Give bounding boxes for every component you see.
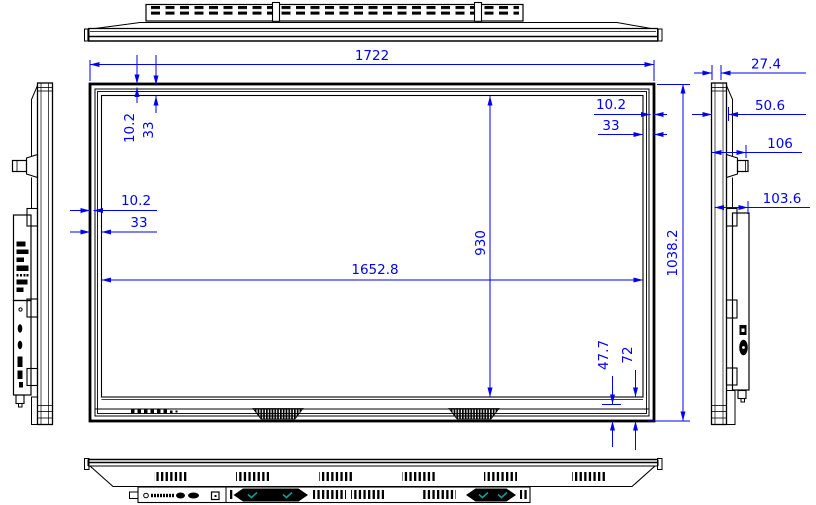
dim-active-height-label: 930 bbox=[473, 230, 489, 256]
dim-top-bezel-outer-label: 33 bbox=[141, 121, 157, 138]
foot-left bbox=[16, 395, 24, 404]
right-side-view bbox=[712, 83, 750, 425]
dim-depth-handle: 106 bbox=[712, 136, 802, 158]
dim-right-bezel-inner-label: 10.2 bbox=[596, 97, 626, 113]
bracket-tab bbox=[727, 368, 738, 385]
bracket-tab bbox=[27, 299, 38, 317]
control-buttons bbox=[131, 410, 178, 414]
dim-right-bezel-outer-label: 33 bbox=[602, 118, 619, 134]
top-view bbox=[85, 3, 663, 42]
dim-left-bezel: 10.2 33 bbox=[70, 193, 157, 232]
dim-depth-handle-label: 106 bbox=[767, 136, 793, 152]
dim-depth-panel: 50.6 bbox=[692, 98, 806, 121]
dim-depth-back-box: 103.6 bbox=[715, 191, 811, 214]
dim-right-bezel: 10.2 33 bbox=[594, 97, 667, 135]
bracket-tab bbox=[727, 209, 738, 227]
front-outer-frame bbox=[90, 84, 654, 421]
speaker-right bbox=[466, 489, 516, 502]
dim-bottom-bezel: 47.7 72 bbox=[596, 340, 636, 450]
bracket-tab bbox=[27, 369, 38, 386]
handle-left bbox=[13, 155, 38, 178]
dimension-drawing: 1722 10.2 33 10.2 33 10.2 33 1652.8 930 bbox=[0, 0, 816, 505]
dim-overall-width-label: 1722 bbox=[355, 48, 389, 64]
bottom-view bbox=[85, 459, 663, 503]
dim-active-width-label: 1652.8 bbox=[351, 262, 398, 278]
dim-depth-panel-label: 50.6 bbox=[755, 98, 785, 114]
dim-left-bezel-inner-label: 10.2 bbox=[121, 193, 151, 209]
bracket-tab bbox=[27, 209, 38, 227]
power-switch bbox=[740, 325, 747, 335]
top-vent-grille bbox=[146, 3, 523, 22]
foot-right bbox=[738, 391, 746, 399]
bracket-tab bbox=[727, 300, 738, 318]
dim-left-bezel-outer-label: 33 bbox=[130, 215, 147, 231]
dim-overall-height-label: 1038.2 bbox=[665, 229, 681, 276]
side-io-connectors bbox=[17, 242, 29, 293]
speaker-left bbox=[234, 489, 309, 502]
power-inlet bbox=[739, 340, 748, 356]
dim-active-area: 1652.8 930 bbox=[102, 96, 644, 397]
bottom-stub bbox=[130, 492, 139, 499]
mount-bracket-right bbox=[475, 3, 482, 22]
dim-depth-front-label: 27.4 bbox=[751, 57, 781, 73]
dim-depth-front: 27.4 bbox=[694, 57, 806, 81]
bottom-vent-slots bbox=[154, 472, 605, 481]
speaker-grille-left bbox=[253, 409, 303, 420]
side-lower-ports bbox=[18, 308, 24, 388]
speaker-grille-right bbox=[449, 409, 499, 420]
handle-right bbox=[727, 155, 749, 178]
side-lower-box bbox=[14, 301, 32, 396]
dim-bottom-bezel-inner-label: 47.7 bbox=[596, 340, 612, 370]
mount-bracket-left bbox=[273, 3, 280, 22]
dim-top-bezel: 10.2 33 bbox=[122, 55, 157, 143]
dim-depth-back-box-label: 103.6 bbox=[763, 191, 802, 207]
dim-top-bezel-inner-label: 10.2 bbox=[122, 113, 138, 143]
dim-overall-width: 1722 bbox=[90, 48, 654, 81]
back-box bbox=[733, 213, 750, 390]
front-view bbox=[90, 84, 654, 421]
left-side-view bbox=[13, 83, 53, 425]
drawing-canvas: 1722 10.2 33 10.2 33 10.2 33 1652.8 930 bbox=[0, 0, 816, 505]
active-display-area bbox=[102, 96, 644, 398]
dim-bottom-bezel-outer-label: 72 bbox=[620, 346, 636, 363]
